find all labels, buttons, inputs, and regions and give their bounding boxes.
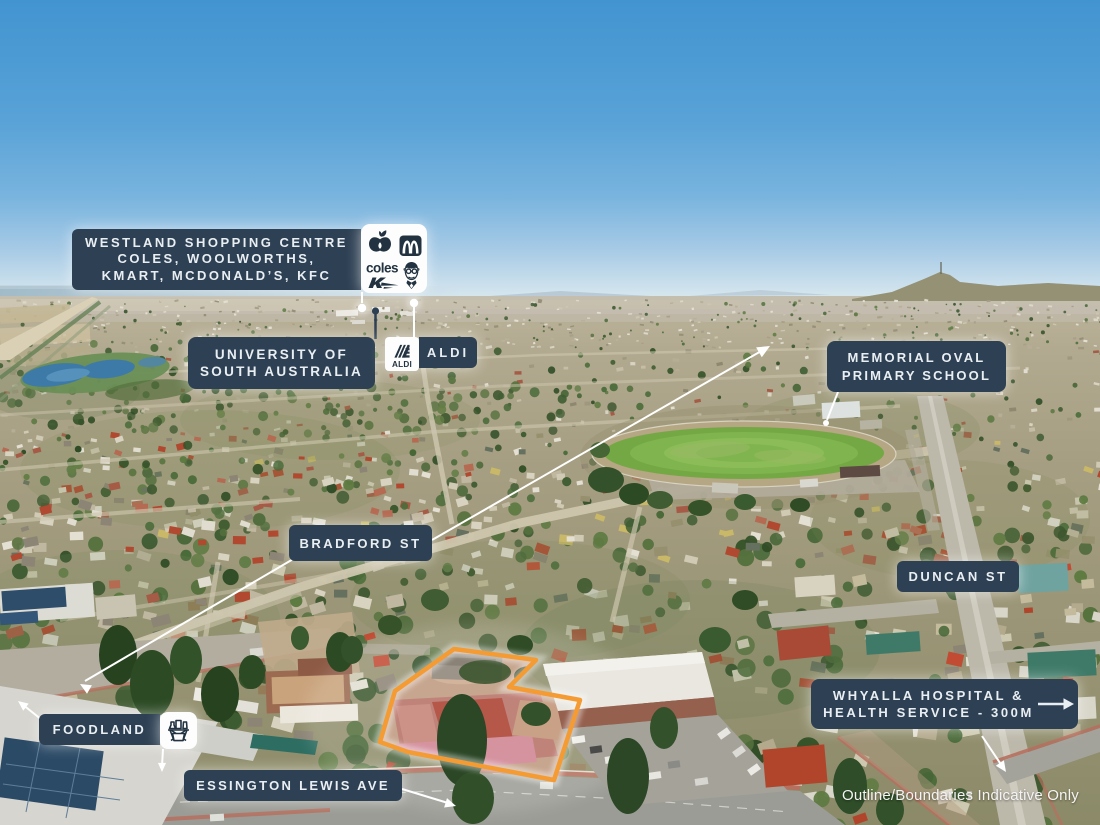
svg-text:coles: coles bbox=[366, 261, 398, 276]
svg-text:ALDI: ALDI bbox=[392, 360, 412, 369]
